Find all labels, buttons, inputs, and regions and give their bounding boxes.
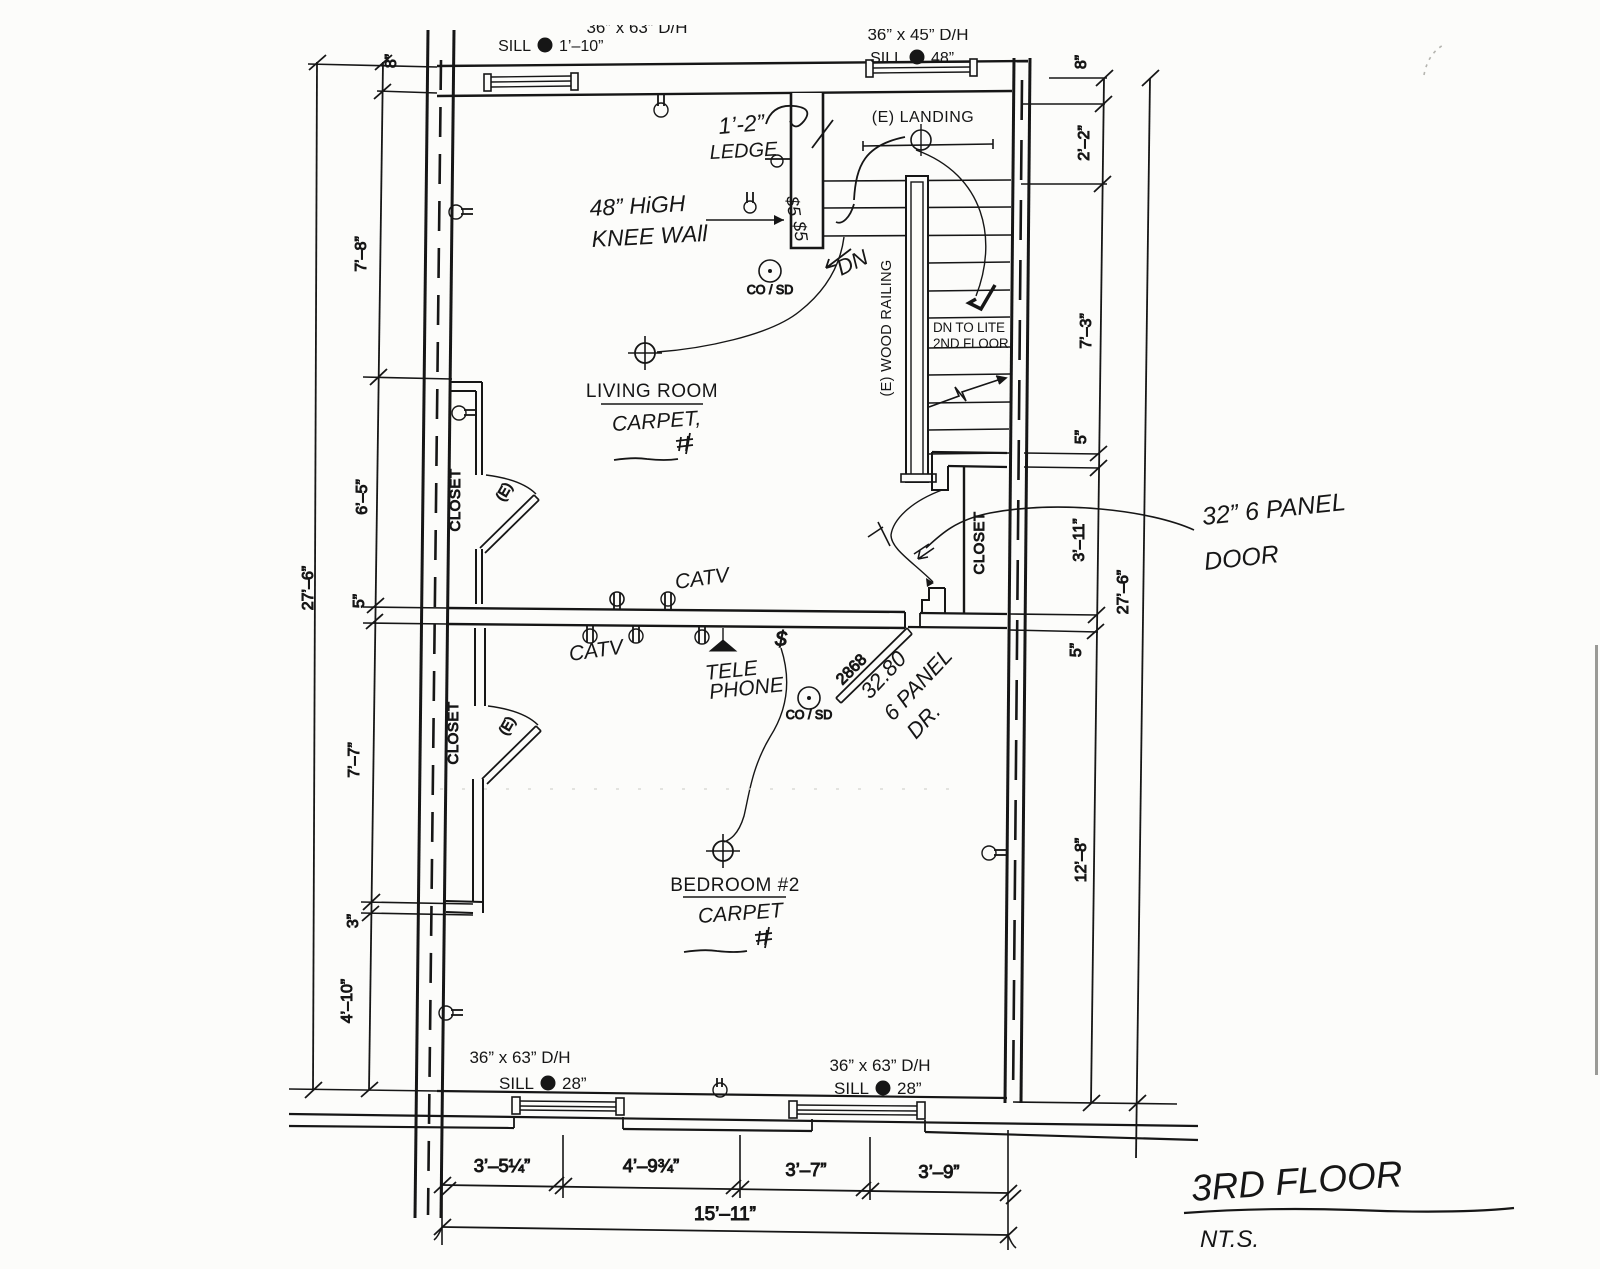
svg-text:6’–5”: 6’–5” [354, 479, 371, 515]
svg-text:(E) LANDING: (E) LANDING [872, 109, 974, 126]
svg-text:DN TO LITE: DN TO LITE [933, 320, 1005, 335]
svg-text:$: $ [774, 628, 787, 651]
svg-text:1’–10”: 1’–10” [559, 38, 603, 55]
svg-text:27’–6”: 27’–6” [1115, 570, 1132, 614]
svg-text:36” x 63” D/H: 36” x 63” D/H [469, 1048, 570, 1067]
svg-text:4’–10”: 4’–10” [339, 979, 356, 1023]
svg-text:LIVING ROOM: LIVING ROOM [586, 381, 718, 402]
svg-text:BEDROOM #2: BEDROOM #2 [670, 875, 800, 896]
svg-text:3”: 3” [345, 914, 362, 928]
svg-text:CLOSET: CLOSET [447, 468, 464, 531]
svg-text:$5: $5 [782, 194, 805, 219]
svg-text:(E) WOOD RAILING: (E) WOOD RAILING [879, 260, 895, 397]
svg-text:2ND FLOOR: 2ND FLOOR [933, 336, 1009, 351]
svg-text:CO / SD: CO / SD [747, 283, 794, 297]
svg-text:48”: 48” [931, 50, 954, 67]
svg-text:CLOSET: CLOSET [971, 511, 988, 574]
svg-text:$5: $5 [789, 219, 812, 244]
svg-text:3’–9”: 3’–9” [918, 1161, 959, 1182]
svg-text:28”: 28” [897, 1079, 922, 1098]
svg-text:CLOSET: CLOSET [445, 701, 462, 764]
svg-text:36” x 63” D/H: 36” x 63” D/H [829, 1056, 930, 1075]
svg-text:7’–3”: 7’–3” [1078, 313, 1095, 349]
svg-text:SILL: SILL [498, 38, 531, 55]
svg-text:5”: 5” [351, 594, 368, 608]
svg-text:1’-2”: 1’-2” [717, 109, 766, 139]
svg-text:SILL: SILL [834, 1079, 869, 1098]
svg-text:4’–9¾”: 4’–9¾” [623, 1155, 680, 1176]
svg-text:15’–11”: 15’–11” [694, 1204, 756, 1225]
svg-text:SILL: SILL [499, 1074, 534, 1093]
svg-text:5”: 5” [1068, 643, 1085, 657]
svg-text:5”: 5” [1073, 430, 1090, 444]
svg-text:SILL: SILL [870, 50, 903, 67]
svg-text:28”: 28” [562, 1074, 587, 1093]
svg-text:CO / SD: CO / SD [786, 708, 833, 722]
svg-text:3’–7”: 3’–7” [785, 1159, 826, 1180]
svg-text:8”: 8” [383, 54, 400, 68]
svg-text:3’–11”: 3’–11” [1071, 518, 1088, 561]
svg-text:7’–8”: 7’–8” [353, 236, 370, 272]
svg-text:3’–5¼”: 3’–5¼” [474, 1155, 531, 1176]
svg-text:8”: 8” [1073, 55, 1090, 69]
svg-text:12’–8”: 12’–8” [1073, 838, 1090, 882]
svg-text:48” HiGH: 48” HiGH [589, 190, 686, 221]
svg-text:27’–6”: 27’–6” [300, 566, 317, 610]
svg-text:LEDGE: LEDGE [709, 138, 779, 164]
svg-text:NT.S.: NT.S. [1200, 1226, 1259, 1253]
svg-text:7’–7”: 7’–7” [346, 742, 363, 778]
svg-text:2’–2”: 2’–2” [1076, 125, 1093, 161]
